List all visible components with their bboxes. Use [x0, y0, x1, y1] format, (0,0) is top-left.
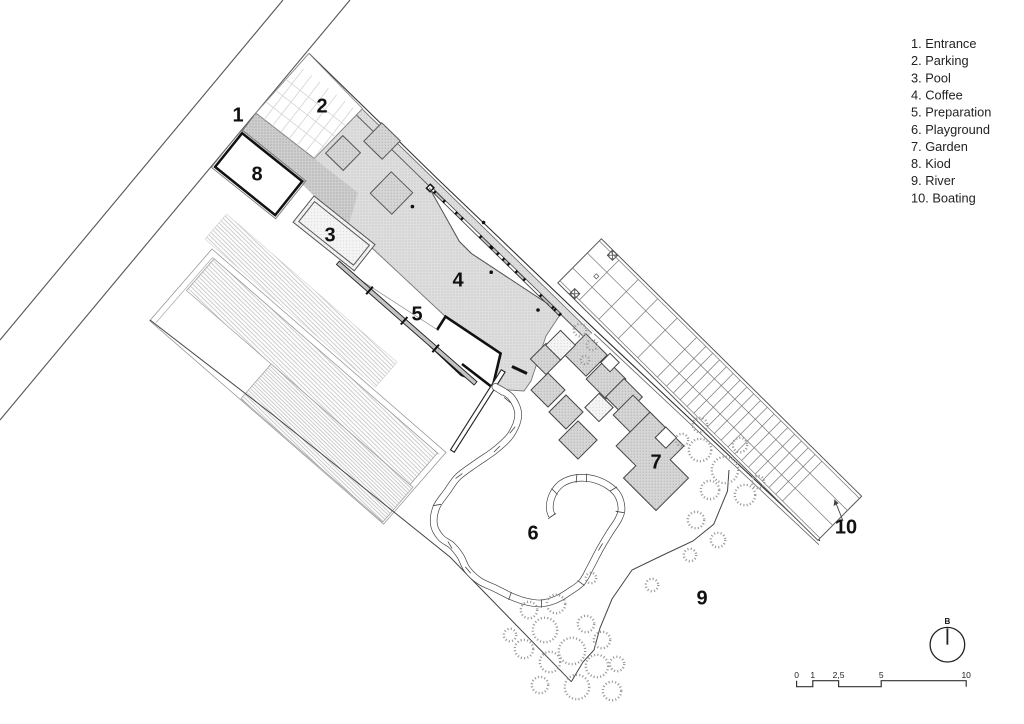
svg-text:3: 3 [324, 224, 335, 246]
svg-text:7. Garden: 7. Garden [911, 139, 968, 154]
svg-text:6: 6 [527, 522, 538, 544]
svg-text:3. Pool: 3. Pool [911, 70, 951, 85]
svg-text:2,5: 2,5 [833, 670, 845, 680]
svg-text:4. Coffee: 4. Coffee [911, 87, 963, 102]
svg-text:1. Entrance: 1. Entrance [911, 36, 976, 51]
svg-text:10. Boating: 10. Boating [911, 190, 976, 205]
svg-text:2. Parking: 2. Parking [911, 53, 969, 68]
svg-text:1: 1 [810, 670, 815, 680]
svg-text:10: 10 [961, 670, 971, 680]
svg-text:7: 7 [650, 451, 661, 473]
svg-text:8. Kiod: 8. Kiod [911, 156, 951, 171]
svg-text:1: 1 [232, 104, 243, 126]
svg-text:5. Preparation: 5. Preparation [911, 105, 991, 120]
svg-text:0: 0 [794, 670, 799, 680]
svg-text:8: 8 [251, 163, 262, 185]
svg-text:6. Playground: 6. Playground [911, 122, 990, 137]
svg-text:2: 2 [316, 95, 327, 117]
svg-text:10: 10 [835, 516, 857, 538]
svg-text:B: B [945, 617, 951, 626]
svg-text:5: 5 [879, 670, 884, 680]
svg-text:9. River: 9. River [911, 173, 956, 188]
svg-text:5: 5 [411, 303, 422, 325]
svg-text:4: 4 [452, 269, 464, 291]
svg-text:9: 9 [696, 587, 707, 609]
